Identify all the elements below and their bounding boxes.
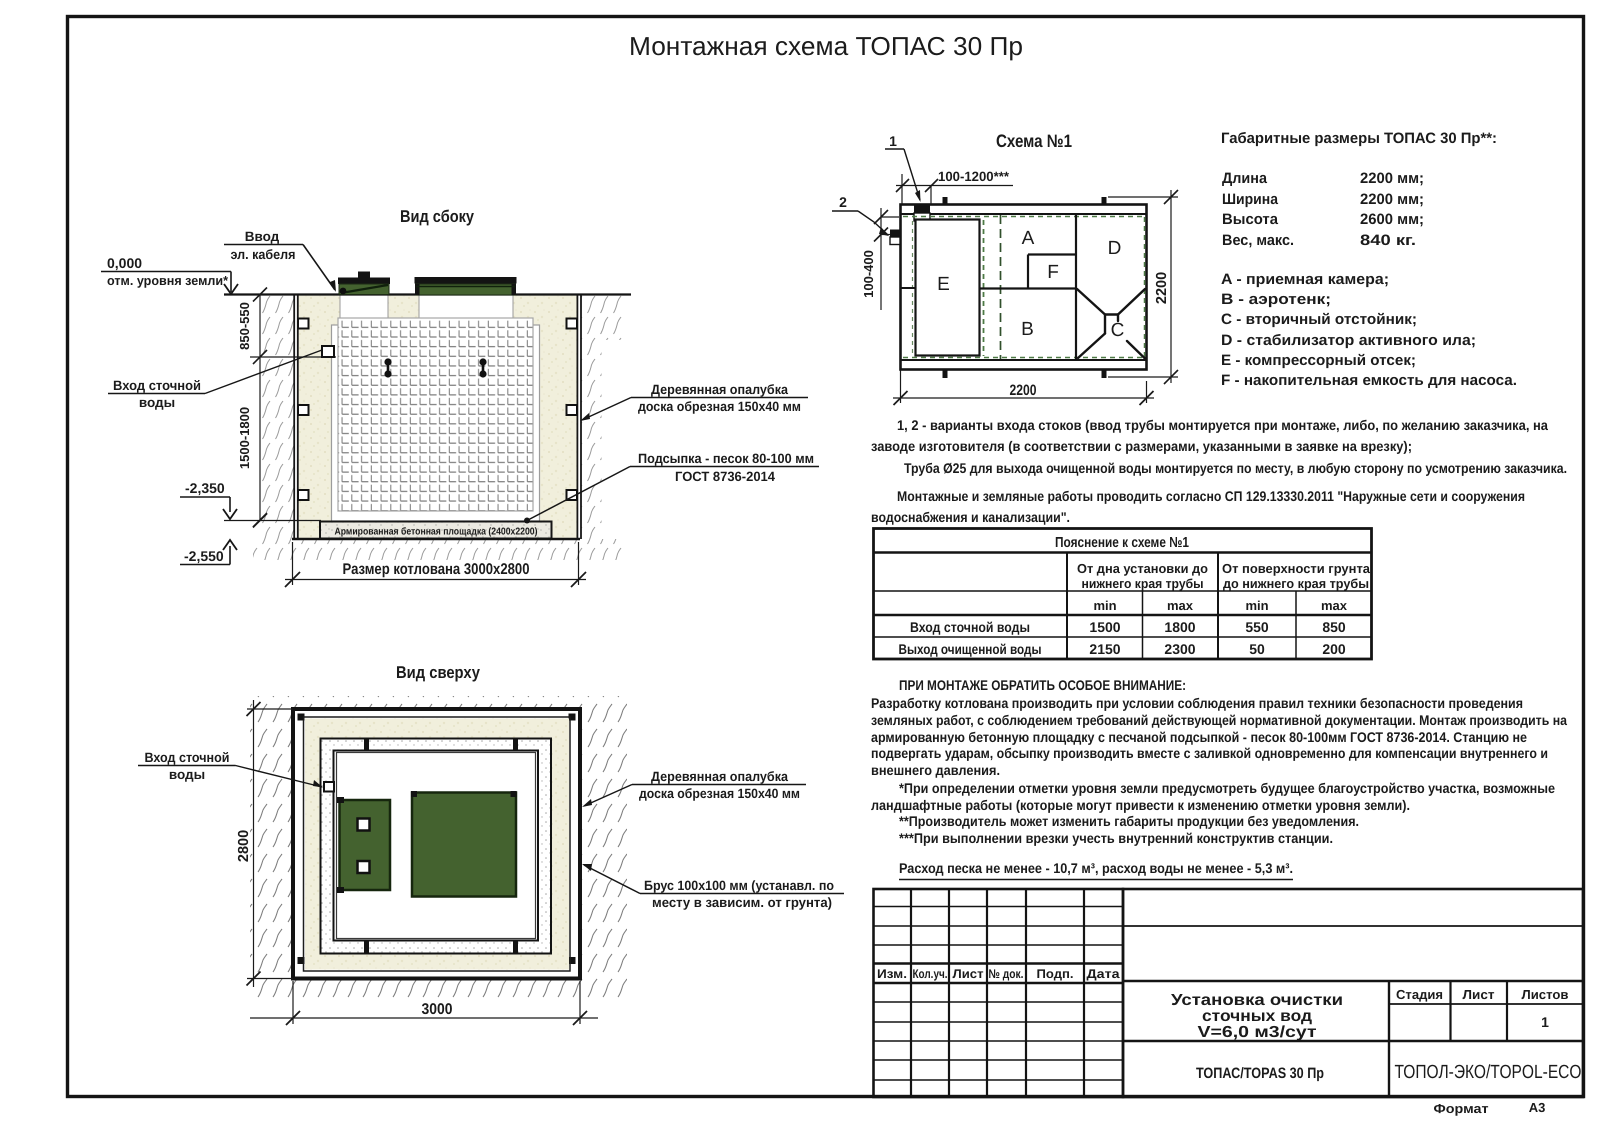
svg-text:1: 1 (1541, 1014, 1549, 1030)
svg-text:внешнего давления.: внешнего давления. (871, 762, 1000, 778)
svg-text:0,000: 0,000 (107, 255, 142, 271)
svg-text:Пояснение к схеме №1: Пояснение к схеме №1 (1055, 535, 1189, 551)
svg-text:V=6,0 м3/сут: V=6,0 м3/сут (1198, 1024, 1317, 1041)
svg-text:550: 550 (1245, 619, 1269, 635)
svg-text:Размер котлована 3000х2800: Размер котлована 3000х2800 (343, 561, 530, 578)
svg-text:1800: 1800 (1164, 619, 1195, 635)
svg-text:D - стабилизатор активного ила: D - стабилизатор активного ила; (1221, 332, 1476, 349)
svg-text:Деревянная опалубка: Деревянная опалубка (651, 382, 788, 397)
svg-text:Высота: Высота (1222, 211, 1279, 228)
svg-text:1500-1800: 1500-1800 (237, 407, 252, 469)
svg-text:100-400: 100-400 (861, 250, 876, 298)
svg-text:А3: А3 (1529, 1100, 1546, 1115)
svg-text:подвергать ударам, обсыпку про: подвергать ударам, обсыпку производить в… (871, 745, 1548, 761)
svg-text:***При выполнении врезки учест: ***При выполнении врезки учесть внутренн… (899, 830, 1333, 846)
svg-text:Формат: Формат (1434, 1101, 1489, 1116)
svg-text:Разработку котлована производи: Разработку котлована производить при усл… (871, 695, 1523, 711)
svg-text:2200 мм;: 2200 мм; (1360, 191, 1424, 208)
svg-text:воды: воды (169, 767, 205, 782)
svg-text:месту в зависим. от грунта): месту в зависим. от грунта) (652, 895, 832, 910)
svg-text:1: 1 (889, 133, 897, 149)
svg-text:1, 2 - варианты входа стоков: 1, 2 - варианты входа стоков (ввод трубы… (897, 417, 1548, 433)
svg-text:отм. уровня земли*: отм. уровня земли* (107, 273, 229, 288)
svg-text:A: A (1022, 228, 1035, 249)
svg-text:Брус 100х100 мм (устанавл. по: Брус 100х100 мм (устанавл. по (644, 878, 834, 893)
svg-text:доска обрезная 150х40 мм: доска обрезная 150х40 мм (638, 399, 801, 414)
svg-text:Стадия: Стадия (1396, 987, 1443, 1002)
svg-text:3000: 3000 (422, 1001, 453, 1018)
svg-text:100-1200***: 100-1200*** (938, 169, 1010, 184)
svg-text:Монтажные и земляные работы пр: Монтажные и земляные работы проводить со… (897, 488, 1525, 504)
svg-text:C: C (1111, 320, 1125, 341)
svg-text:Схема №1: Схема №1 (996, 131, 1072, 151)
svg-text:Вес, макс.: Вес, макс. (1222, 232, 1294, 249)
svg-text:Установка очистки: Установка очистки (1171, 992, 1343, 1009)
svg-text:ТОПАС/TOPAS 30 Пр: ТОПАС/TOPAS 30 Пр (1196, 1065, 1324, 1082)
svg-text:min: min (1245, 598, 1268, 613)
svg-text:Вид сбоку: Вид сбоку (400, 207, 474, 226)
svg-text:ПРИ МОНТАЖЕ ОБРАТИТЬ ОСОБОЕ ВН: ПРИ МОНТАЖЕ ОБРАТИТЬ ОСОБОЕ ВНИМАНИЕ: (899, 677, 1186, 693)
svg-text:Деревянная опалубка: Деревянная опалубка (651, 769, 788, 784)
svg-text:F - накопительная емкость для: F - накопительная емкость для насоса. (1221, 372, 1517, 389)
svg-text:Лист: Лист (1463, 987, 1495, 1002)
svg-text:max: max (1321, 598, 1348, 613)
svg-text:E - компрессорный отсек;: E - компрессорный отсек; (1221, 352, 1416, 369)
svg-text:840 кг.: 840 кг. (1360, 232, 1416, 249)
svg-text:Лист: Лист (953, 967, 984, 981)
svg-text:Ширина: Ширина (1222, 191, 1279, 208)
svg-text:Вход сточной воды: Вход сточной воды (910, 619, 1030, 635)
svg-text:**Производитель может изменить: **Производитель может изменить габариты … (899, 813, 1359, 829)
svg-text:Дата: Дата (1087, 967, 1121, 981)
svg-text:эл. кабеля: эл. кабеля (231, 247, 296, 262)
svg-text:50: 50 (1249, 641, 1265, 657)
svg-text:водоснабжения и канализации".: водоснабжения и канализации". (871, 509, 1070, 525)
svg-text:F: F (1047, 262, 1059, 283)
svg-text:доска обрезная 150х40 мм: доска обрезная 150х40 мм (639, 786, 800, 801)
svg-text:2600 мм;: 2600 мм; (1360, 211, 1424, 228)
svg-text:От поверхности грунта: От поверхности грунта (1222, 561, 1371, 576)
svg-text:D: D (1108, 238, 1122, 259)
svg-text:Вход сточной: Вход сточной (145, 750, 230, 765)
svg-text:нижнего края трубы: нижнего края трубы (1082, 576, 1204, 591)
svg-text:ландшафтные работы (которые мо: ландшафтные работы (которые могут привес… (871, 797, 1410, 813)
svg-text:2200 мм;: 2200 мм; (1360, 170, 1424, 187)
svg-text:2: 2 (839, 194, 847, 210)
svg-text:Труба Ø25 для выхода очищенной: Труба Ø25 для выхода очищенной воды монт… (904, 460, 1567, 476)
svg-text:B - аэротенк;: B - аэротенк; (1221, 291, 1331, 308)
svg-text:-2,550: -2,550 (184, 548, 224, 564)
svg-text:Монтажная схема ТОПАС 30 Пр: Монтажная схема ТОПАС 30 Пр (629, 31, 1023, 61)
svg-text:Вход сточной: Вход сточной (113, 378, 201, 393)
svg-text:1500: 1500 (1089, 619, 1120, 635)
svg-text:Кол.уч.: Кол.уч. (913, 967, 948, 981)
svg-text:Выход очищенной воды: Выход очищенной воды (899, 641, 1042, 657)
svg-text:воды: воды (139, 395, 175, 410)
svg-text:Габаритные размеры ТОПАС 30 Пр: Габаритные размеры ТОПАС 30 Пр**: (1221, 130, 1497, 147)
svg-text:От дна установки до: От дна установки до (1077, 561, 1208, 576)
svg-text:B: B (1021, 319, 1034, 340)
svg-text:земляных работ, с соблюдением: земляных работ, с соблюдением требований… (871, 712, 1567, 728)
svg-text:армированную бетонную площадку: армированную бетонную площадку с песчано… (871, 729, 1527, 745)
svg-text:850: 850 (1322, 619, 1346, 635)
svg-text:*При определении отметки уровн: *При определении отметки уровня земли пр… (899, 780, 1555, 796)
svg-text:A - приемная камера;: A - приемная камера; (1221, 271, 1389, 288)
svg-text:Подп.: Подп. (1037, 967, 1074, 981)
svg-text:C - вторичный отстойник;: C - вторичный отстойник; (1221, 311, 1417, 328)
svg-text:2200: 2200 (1154, 272, 1170, 304)
svg-text:до нижнего края трубы: до нижнего края трубы (1223, 576, 1369, 591)
svg-text:Длина: Длина (1222, 170, 1268, 187)
svg-text:200: 200 (1322, 641, 1346, 657)
svg-text:Подсыпка - песок 80-100 мм: Подсыпка - песок 80-100 мм (638, 451, 814, 466)
svg-text:2800: 2800 (236, 830, 252, 862)
svg-text:Вид сверху: Вид сверху (396, 663, 480, 682)
svg-text:Листов: Листов (1522, 987, 1569, 1002)
svg-text:№ док.: № док. (989, 967, 1024, 981)
svg-text:Армированная бетонная площадка: Армированная бетонная площадка (2400х220… (335, 527, 538, 538)
svg-text:Изм.: Изм. (877, 967, 907, 981)
svg-text:ГОСТ 8736-2014: ГОСТ 8736-2014 (675, 469, 775, 484)
svg-text:2300: 2300 (1164, 641, 1195, 657)
svg-text:Ввод: Ввод (245, 229, 280, 244)
svg-text:заводе изготовителя (в соответ: заводе изготовителя (в соответствии с ра… (871, 438, 1412, 454)
svg-text:2150: 2150 (1089, 641, 1120, 657)
svg-text:сточных вод: сточных вод (1202, 1008, 1312, 1025)
svg-text:min: min (1093, 598, 1116, 613)
svg-text:2200: 2200 (1010, 382, 1037, 399)
svg-text:Расход песка не менее - 10,7 м: Расход песка не менее - 10,7 м³, расход … (899, 860, 1293, 876)
svg-text:850-550: 850-550 (237, 302, 252, 350)
svg-text:ТОПОЛ-ЭКО/TOPOL-ECO: ТОПОЛ-ЭКО/TOPOL-ECO (1395, 1062, 1582, 1083)
svg-text:max: max (1167, 598, 1194, 613)
svg-text:-2,350: -2,350 (185, 480, 225, 496)
svg-text:E: E (937, 274, 950, 295)
